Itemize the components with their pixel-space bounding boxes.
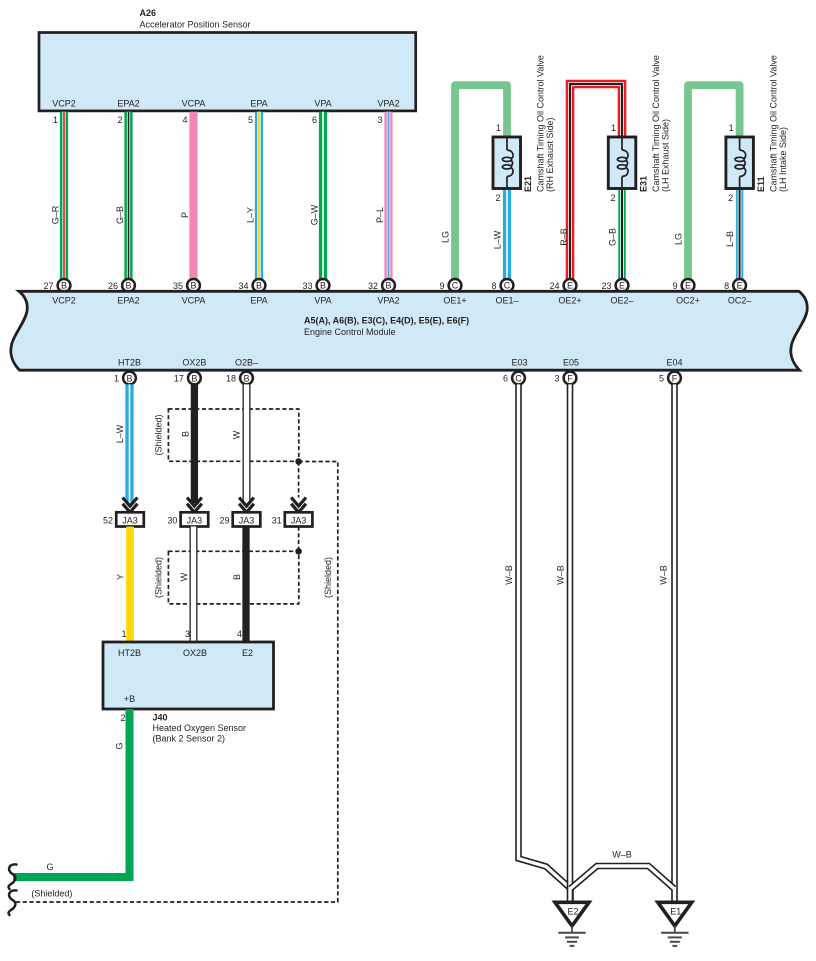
svg-text:W–B: W–B	[556, 565, 566, 585]
svg-text:6: 6	[312, 115, 317, 125]
svg-text:B: B	[191, 373, 197, 383]
svg-text:31: 31	[272, 516, 282, 526]
svg-text:E04: E04	[666, 358, 682, 368]
svg-text:26: 26	[108, 281, 118, 291]
svg-text:LG: LG	[674, 233, 684, 245]
svg-text:G–B: G–B	[608, 228, 618, 246]
svg-text:23: 23	[601, 281, 611, 291]
svg-text:VCPA: VCPA	[182, 98, 206, 108]
svg-text:2: 2	[495, 193, 500, 203]
svg-text:E31: E31	[638, 176, 648, 192]
svg-text:(Bank 2 Sensor 2): (Bank 2 Sensor 2)	[153, 734, 226, 744]
svg-text:JA3: JA3	[291, 516, 307, 526]
svg-text:1: 1	[729, 123, 734, 133]
svg-text:E2: E2	[242, 648, 253, 658]
svg-text:JA3: JA3	[239, 516, 255, 526]
svg-text:(RH Exhaust Side): (RH Exhaust Side)	[545, 117, 555, 192]
svg-text:VPA: VPA	[314, 296, 331, 306]
svg-text:G: G	[46, 862, 53, 872]
svg-text:P–L: P–L	[375, 207, 385, 223]
svg-text:VCP2: VCP2	[52, 296, 76, 306]
svg-text:32: 32	[368, 281, 378, 291]
svg-text:L–Y: L–Y	[246, 207, 256, 223]
svg-text:17: 17	[174, 373, 184, 383]
svg-text:(LH Exhaust Side): (LH Exhaust Side)	[660, 119, 670, 192]
svg-text:J40: J40	[153, 713, 168, 723]
svg-text:1: 1	[114, 373, 119, 383]
svg-text:JA3: JA3	[122, 516, 138, 526]
svg-text:8: 8	[724, 281, 729, 291]
svg-text:6: 6	[503, 373, 508, 383]
svg-text:9: 9	[439, 281, 444, 291]
svg-text:EPA: EPA	[250, 98, 267, 108]
svg-text:E1: E1	[670, 907, 681, 917]
svg-text:B: B	[256, 281, 262, 291]
svg-text:30: 30	[167, 516, 177, 526]
svg-text:Heated Oxygen Sensor: Heated Oxygen Sensor	[153, 723, 247, 733]
svg-text:2: 2	[728, 193, 733, 203]
svg-text:Camshaft Timing Oil Control Va: Camshaft Timing Oil Control Valve	[651, 55, 661, 192]
svg-text:E: E	[737, 281, 743, 291]
svg-text:G–W: G–W	[310, 204, 320, 225]
svg-text:VPA2: VPA2	[377, 296, 399, 306]
svg-text:VCPA: VCPA	[182, 296, 206, 306]
svg-text:4: 4	[182, 115, 187, 125]
svg-text:E11: E11	[756, 176, 766, 192]
svg-text:3: 3	[377, 115, 382, 125]
svg-text:LG: LG	[441, 231, 451, 243]
svg-text:OX2B: OX2B	[182, 358, 206, 368]
svg-text:5: 5	[659, 373, 664, 383]
svg-text:OX2B: OX2B	[183, 648, 207, 658]
svg-text:1: 1	[53, 115, 58, 125]
svg-text:(Shielded): (Shielded)	[154, 557, 164, 598]
svg-text:1: 1	[121, 629, 126, 639]
svg-text:C: C	[515, 373, 522, 383]
svg-text:52: 52	[103, 516, 113, 526]
svg-text:4: 4	[237, 629, 242, 639]
svg-text:F: F	[672, 373, 678, 383]
svg-text:E: E	[619, 281, 625, 291]
svg-text:OE2+: OE2+	[558, 296, 581, 306]
svg-text:35: 35	[173, 281, 183, 291]
svg-text:G–R: G–R	[51, 205, 61, 224]
svg-text:B: B	[190, 281, 196, 291]
svg-text:OC2–: OC2–	[728, 296, 752, 306]
svg-text:VPA2: VPA2	[377, 98, 399, 108]
svg-text:(Shielded): (Shielded)	[323, 557, 333, 598]
svg-text:R–B: R–B	[559, 228, 569, 246]
svg-text:Camshaft Timing Oil Control Va: Camshaft Timing Oil Control Valve	[536, 55, 546, 192]
svg-text:HT2B: HT2B	[118, 358, 141, 368]
svg-text:L–W: L–W	[493, 230, 503, 249]
svg-text:2: 2	[120, 713, 125, 723]
svg-text:E03: E03	[511, 358, 527, 368]
svg-text:F: F	[567, 373, 573, 383]
svg-text:W–B: W–B	[659, 565, 669, 585]
svg-text:G–B: G–B	[115, 206, 125, 224]
svg-text:OE1+: OE1+	[443, 296, 466, 306]
svg-text:2: 2	[610, 193, 615, 203]
svg-text:L–B: L–B	[725, 231, 735, 247]
svg-text:OE1–: OE1–	[495, 296, 518, 306]
svg-text:(Shielded): (Shielded)	[31, 889, 72, 899]
svg-text:1: 1	[496, 123, 501, 133]
svg-text:JA3: JA3	[187, 516, 203, 526]
svg-text:W: W	[179, 572, 189, 581]
svg-text:W: W	[232, 430, 242, 439]
svg-text:B: B	[61, 281, 67, 291]
svg-text:G: G	[115, 742, 125, 749]
svg-text:E: E	[685, 281, 691, 291]
svg-text:W–B: W–B	[504, 565, 514, 585]
svg-text:9: 9	[672, 281, 677, 291]
svg-text:E21: E21	[523, 176, 533, 192]
svg-text:A5(A), A6(B), E3(C), E4(D), E5: A5(A), A6(B), E3(C), E4(D), E5(E), E6(F)	[304, 316, 469, 326]
svg-text:E: E	[567, 281, 573, 291]
svg-text:B: B	[126, 373, 132, 383]
svg-text:OE2–: OE2–	[610, 296, 633, 306]
svg-text:+B: +B	[124, 694, 135, 704]
svg-text:P: P	[180, 212, 190, 218]
svg-text:B: B	[125, 281, 131, 291]
svg-text:5: 5	[248, 115, 253, 125]
svg-text:34: 34	[238, 281, 248, 291]
svg-text:3: 3	[554, 373, 559, 383]
svg-text:24: 24	[549, 281, 559, 291]
svg-text:B: B	[320, 281, 326, 291]
svg-text:OC2+: OC2+	[676, 296, 700, 306]
svg-text:33: 33	[302, 281, 312, 291]
svg-text:W–B: W–B	[612, 850, 632, 860]
svg-text:EPA2: EPA2	[117, 98, 139, 108]
svg-text:29: 29	[219, 516, 229, 526]
svg-text:Y: Y	[116, 574, 126, 580]
svg-text:C: C	[504, 281, 511, 291]
svg-text:B: B	[243, 373, 249, 383]
svg-text:3: 3	[185, 629, 190, 639]
svg-text:B: B	[232, 574, 242, 580]
svg-text:C: C	[452, 281, 459, 291]
svg-text:B: B	[181, 431, 191, 437]
svg-text:L–W: L–W	[115, 424, 125, 443]
svg-text:VCP2: VCP2	[52, 98, 76, 108]
svg-text:O2B–: O2B–	[235, 358, 258, 368]
svg-text:27: 27	[43, 281, 53, 291]
svg-text:1: 1	[611, 123, 616, 133]
svg-text:E05: E05	[563, 358, 579, 368]
svg-text:Camshaft Timing Oil Control Va: Camshaft Timing Oil Control Valve	[768, 55, 778, 192]
svg-text:Engine Control Module: Engine Control Module	[304, 327, 396, 337]
svg-text:HT2B: HT2B	[118, 648, 141, 658]
svg-text:(Shielded): (Shielded)	[154, 414, 164, 455]
svg-text:VPA: VPA	[314, 98, 331, 108]
svg-text:2: 2	[117, 115, 122, 125]
svg-text:B: B	[385, 281, 391, 291]
svg-text:Accelerator Position Sensor: Accelerator Position Sensor	[140, 19, 251, 29]
svg-text:(LH Intake Side): (LH Intake Side)	[778, 127, 788, 192]
svg-text:EPA: EPA	[250, 296, 267, 306]
svg-text:8: 8	[491, 281, 496, 291]
svg-text:18: 18	[226, 373, 236, 383]
svg-text:EPA2: EPA2	[117, 296, 139, 306]
svg-text:A26: A26	[140, 8, 157, 18]
svg-text:E2: E2	[567, 907, 578, 917]
